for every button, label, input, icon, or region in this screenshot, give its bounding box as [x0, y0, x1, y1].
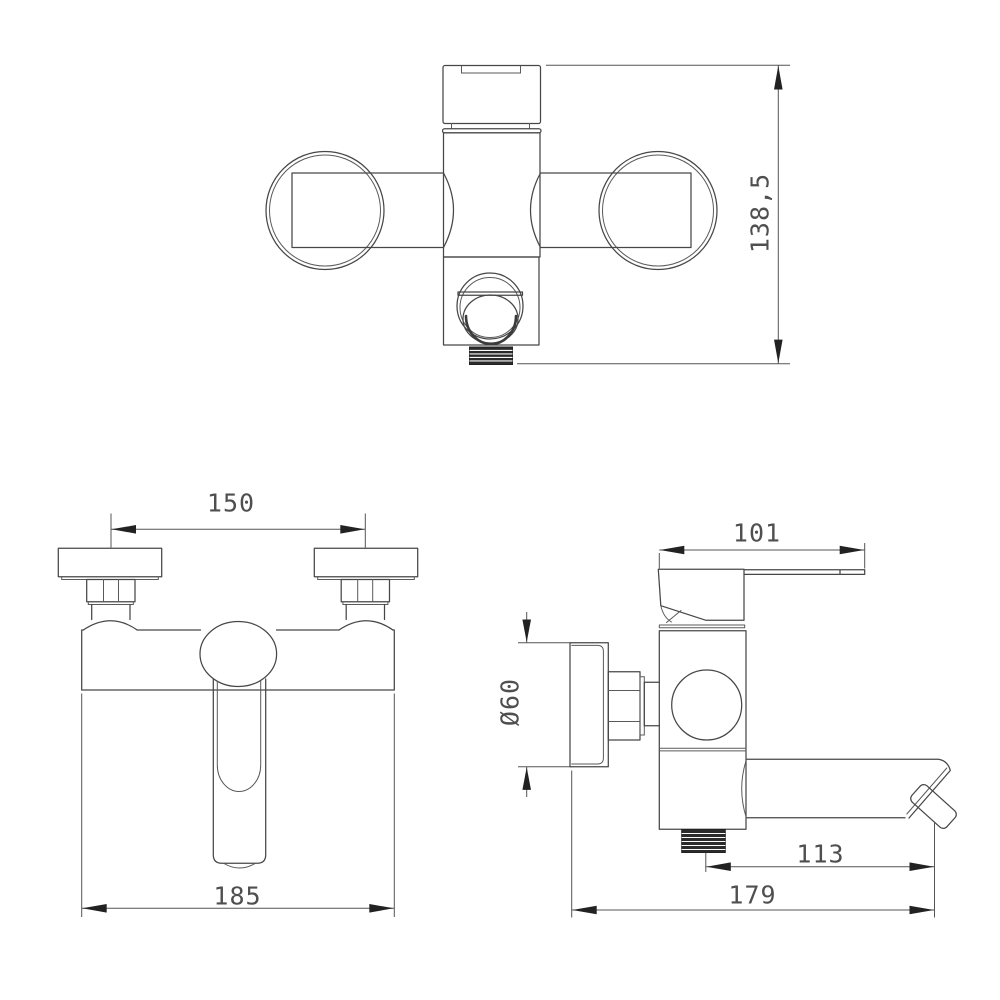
front-left-flange: [58, 548, 161, 576]
front-body: [82, 630, 395, 690]
side-body: [659, 631, 746, 830]
arrowhead-down: [774, 340, 783, 364]
front-right-nut-facets: [358, 580, 373, 602]
right-escutcheon-outer: [599, 152, 717, 270]
arrowhead-up: [522, 767, 531, 790]
arrowhead-left: [660, 546, 685, 555]
front-view: [58, 548, 417, 868]
front-lever-pivot-dome: [200, 622, 277, 687]
top-view-handle: [443, 66, 541, 124]
front-left-nut: [87, 580, 135, 602]
arrowhead-left: [82, 904, 107, 913]
front-left-nut-collar: [88, 602, 133, 605]
arrowhead-right: [369, 904, 394, 913]
dim-lines-150: [111, 514, 365, 548]
front-lever-handle: [213, 679, 265, 863]
arrowhead-right: [910, 862, 935, 871]
side-lever-blade: [744, 570, 865, 575]
front-right-union: [339, 605, 393, 631]
left-escutcheon-outer: [266, 152, 384, 270]
front-right-nut-collar: [343, 602, 388, 605]
right-arm-end-cap: [531, 173, 541, 248]
dim-label-flange-diameter: Ø60: [498, 678, 523, 726]
side-body-seam: [659, 748, 746, 751]
top-view-thread: [470, 347, 513, 365]
side-union-pipe: [644, 682, 659, 725]
side-cartridge-collar: [659, 625, 744, 628]
arrowhead-up: [774, 66, 783, 90]
dim-label-spout-reach: 113: [796, 841, 844, 866]
left-escutcheon-inner: [270, 155, 381, 266]
top-view: [266, 66, 717, 365]
arrowhead-left: [706, 862, 731, 871]
front-right-nut: [341, 580, 389, 602]
drawing-linework: [0, 0, 1000, 1000]
arrowhead-left: [572, 906, 597, 915]
side-nut-facets: [608, 691, 640, 722]
dim-label-overall-depth: 179: [728, 882, 776, 907]
dim-lines-60: [518, 612, 572, 797]
front-lever-end-cap: [224, 864, 255, 869]
left-arm-end-cap: [444, 173, 454, 248]
right-escutcheon-inner: [603, 155, 714, 266]
dimension-hole-spacing: [111, 514, 365, 548]
arrowhead-right: [910, 906, 935, 915]
side-flange: [570, 643, 608, 767]
side-nut-collar: [640, 677, 644, 735]
top-view-cartridge-ring: [443, 129, 542, 133]
front-left-union: [83, 605, 137, 631]
front-left-nut-facets: [104, 580, 119, 602]
side-spout-tip-edge: [907, 768, 947, 814]
side-nut: [608, 672, 640, 740]
right-arm: [541, 173, 692, 248]
top-view-handle-neck-ticks: [452, 124, 530, 129]
front-lever-inner-contour: [217, 681, 260, 792]
front-right-flange: [314, 548, 417, 576]
side-handle-cap: [658, 569, 744, 620]
arrowhead-left: [112, 525, 137, 534]
top-view-body: [444, 133, 541, 257]
side-diverter-knob: [672, 670, 742, 740]
diverter-cap-rim: [466, 316, 516, 344]
arrowhead-down: [522, 620, 531, 643]
dim-label-overall-height: 138,5: [748, 172, 773, 252]
side-view: [570, 569, 958, 852]
side-cap-cut-line: [667, 611, 682, 623]
dim-label-overall-width: 185: [213, 883, 261, 908]
dim-label-handle-length: 101: [733, 520, 781, 545]
left-arm: [292, 173, 444, 248]
technical-drawing: 138,5 150 185 101 Ø60 113 179: [0, 0, 1000, 1000]
dim-label-hole-spacing: 150: [207, 491, 255, 516]
arrowhead-right: [340, 525, 365, 534]
arrowhead-right: [840, 546, 865, 555]
side-flange-face: [572, 645, 604, 764]
top-view-handle-notch: [462, 66, 521, 73]
dimension-flange-diameter: [518, 612, 572, 797]
